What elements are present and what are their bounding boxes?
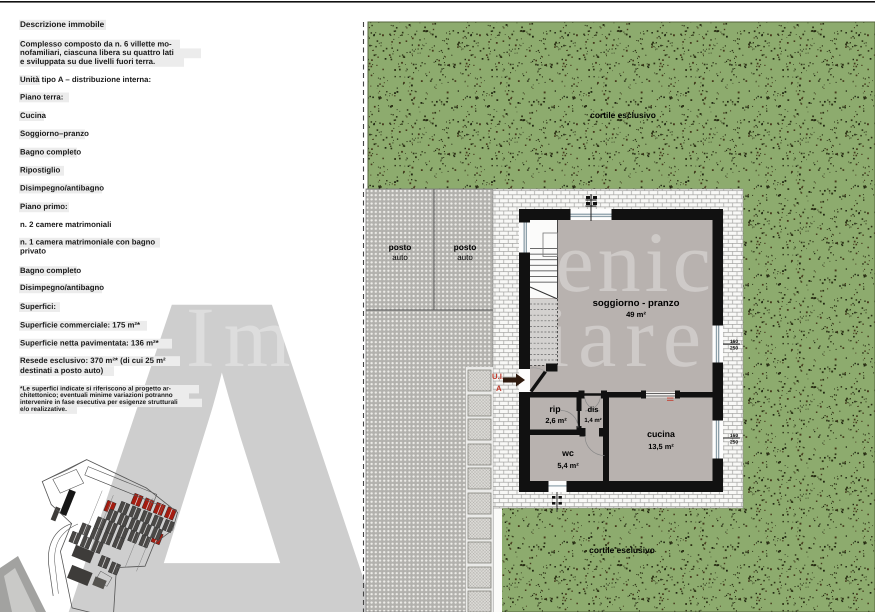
svg-text:rip: rip [549, 404, 561, 414]
svg-text:Piano primo:: Piano primo: [20, 202, 68, 211]
svg-text:n. 2 camere matrimoniali: n. 2 camere matrimoniali [20, 220, 111, 229]
svg-text:privato: privato [20, 246, 46, 255]
svg-text:49 m²: 49 m² [626, 310, 646, 319]
svg-text:Cucina: Cucina [20, 111, 47, 120]
svg-text:e/o realizzative.: e/o realizzative. [20, 406, 67, 413]
svg-text:auto: auto [457, 253, 473, 262]
svg-text:Disimpegno/antibagno: Disimpegno/antibagno [20, 183, 104, 192]
svg-text:wc: wc [561, 448, 574, 458]
svg-text:Disimpegno/antibagno: Disimpegno/antibagno [20, 283, 104, 292]
svg-text:destinati a posto auto): destinati a posto auto) [20, 366, 104, 375]
svg-text:160: 160 [730, 433, 738, 439]
svg-text:1,4 m²: 1,4 m² [584, 417, 601, 424]
svg-text:cortile esclusivo: cortile esclusivo [589, 545, 655, 555]
svg-text:5,4 m²: 5,4 m² [557, 461, 579, 470]
svg-text:Bagno completo: Bagno completo [20, 148, 81, 157]
svg-text:250: 250 [730, 440, 738, 446]
svg-text:posto: posto [389, 242, 412, 252]
svg-text:Superficie netta pavimentata:: Superficie netta pavimentata: 136 m²* [20, 339, 160, 348]
svg-text:Resede esclusivo: 370 m²* (di: Resede esclusivo: 370 m²* (di cui 25 m² [20, 356, 166, 365]
svg-text:cortile esclusivo: cortile esclusivo [590, 110, 656, 120]
svg-text:posto: posto [454, 242, 477, 252]
svg-text:2,6 m²: 2,6 m² [545, 416, 567, 425]
svg-text:A: A [496, 384, 502, 393]
svg-text:cucina: cucina [647, 429, 675, 439]
svg-text:dis: dis [588, 405, 599, 414]
svg-text:13,5 m²: 13,5 m² [648, 442, 674, 451]
svg-text:e sviluppata su due livelli fu: e sviluppata su due livelli fuori terra. [20, 57, 155, 66]
svg-text:Superfici:: Superfici: [20, 302, 56, 311]
svg-text:n. 1 camera matrimoniale con b: n. 1 camera matrimoniale con bagno [20, 238, 155, 247]
svg-text:Ripostiglio: Ripostiglio [20, 166, 61, 175]
svg-text:soggiorno - pranzo: soggiorno - pranzo [593, 298, 680, 309]
svg-text:auto: auto [392, 253, 408, 262]
svg-text:Bagno completo: Bagno completo [20, 266, 81, 275]
svg-text:Complesso composto da n. 6 vil: Complesso composto da n. 6 villette mo- [20, 40, 172, 49]
svg-text:250: 250 [730, 346, 738, 352]
svg-text:Piano terra:: Piano terra: [20, 92, 63, 101]
svg-text:Descrizione immobile: Descrizione immobile [20, 20, 105, 29]
svg-text:Unità tipo A – distribuzione i: Unità tipo A – distribuzione interna: [20, 75, 151, 84]
svg-text:U.I.: U.I. [492, 372, 504, 381]
svg-text:Superficie commerciale: 175 m²: Superficie commerciale: 175 m²* [20, 321, 141, 330]
svg-text:160: 160 [730, 339, 738, 345]
svg-text:Soggiorno–pranzo: Soggiorno–pranzo [20, 129, 89, 138]
